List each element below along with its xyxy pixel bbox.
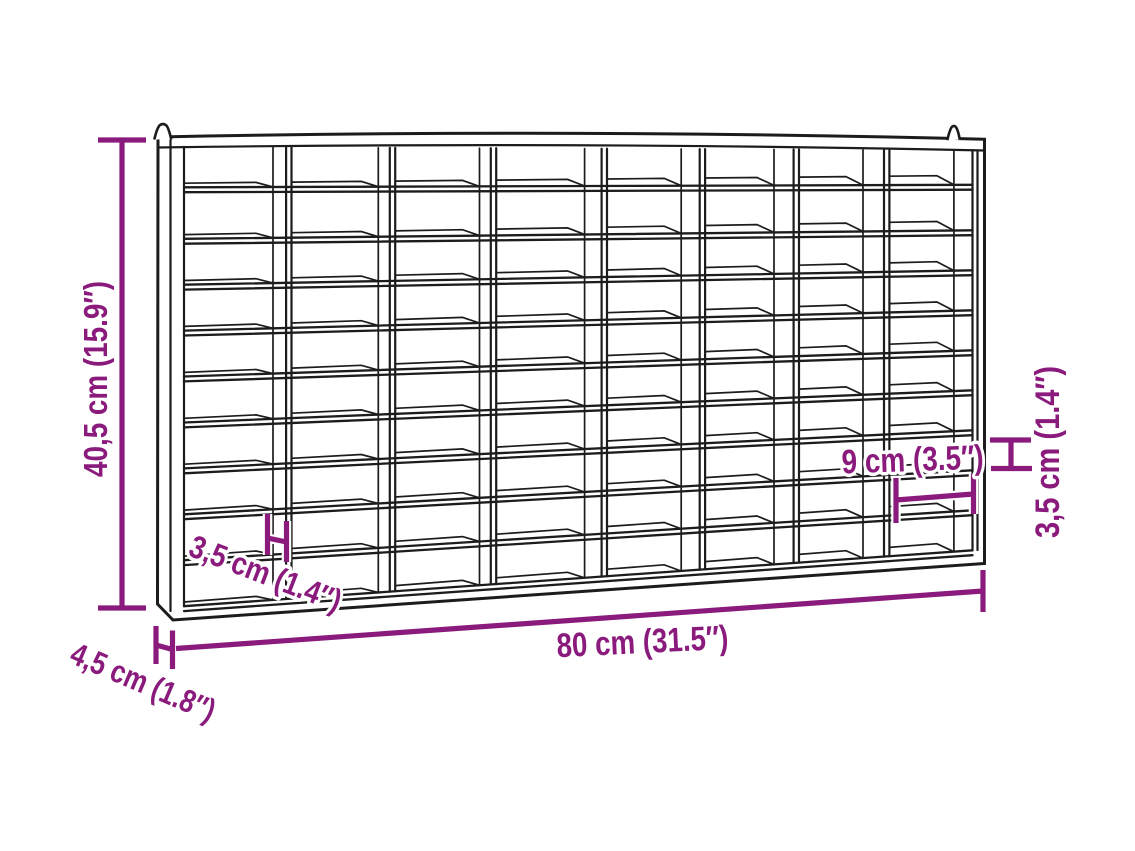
svg-text:9 cm (3.5″): 9 cm (3.5″) (841, 439, 984, 482)
svg-text:3,5 cm (1.4″): 3,5 cm (1.4″) (1029, 366, 1067, 538)
svg-text:40,5 cm (15.9″): 40,5 cm (15.9″) (77, 281, 114, 477)
